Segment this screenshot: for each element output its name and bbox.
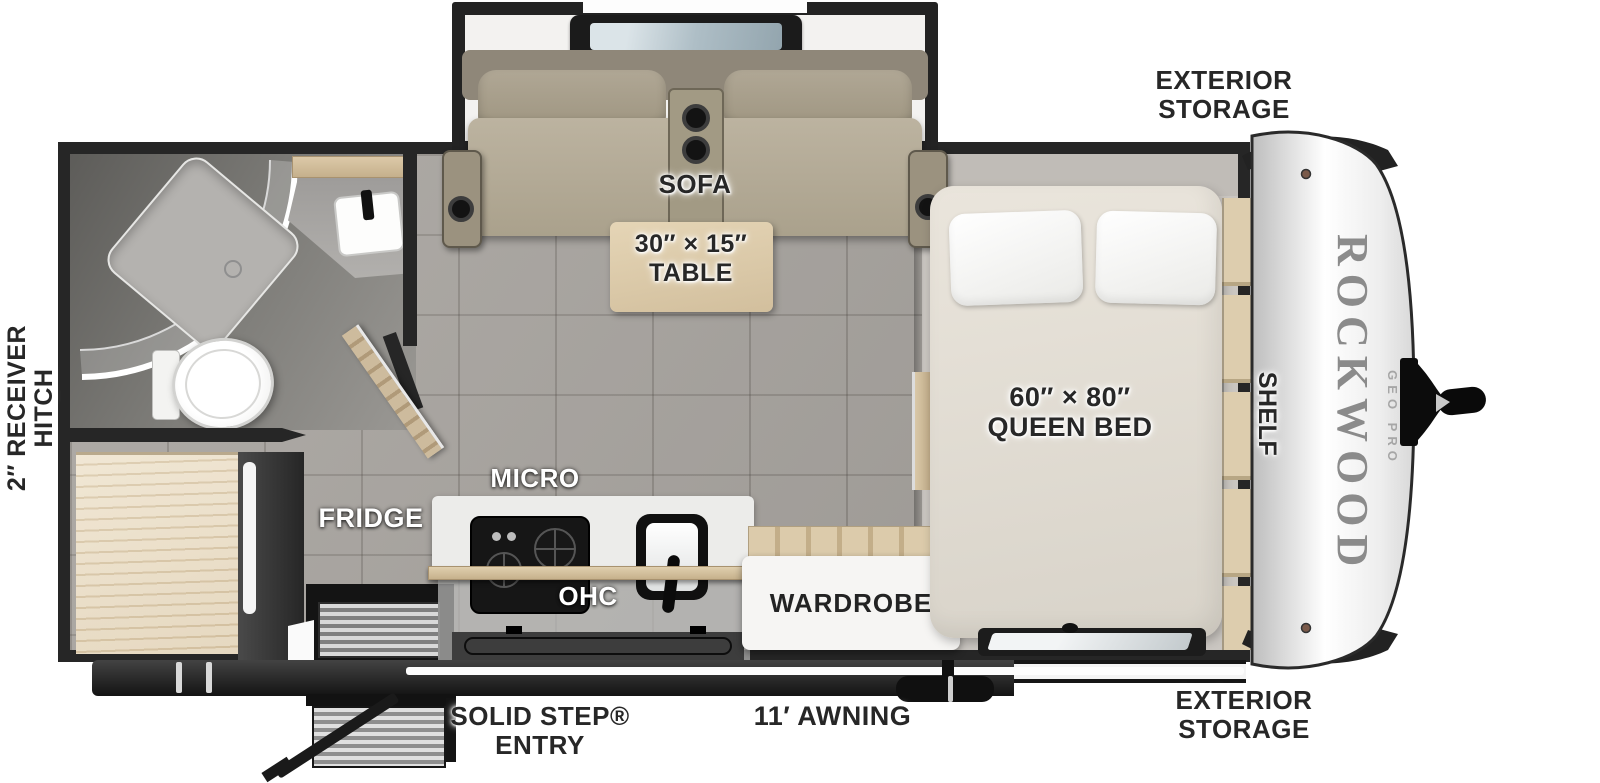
label-fridge: FRIDGE bbox=[306, 504, 436, 532]
wardrobe-label: WARDROBE bbox=[770, 588, 933, 619]
slideout-window-glass bbox=[590, 23, 782, 50]
entry-steps bbox=[318, 602, 440, 658]
wardrobe: WARDROBE bbox=[742, 556, 960, 650]
label-receiver-hitch: 2″ RECEIVER HITCH bbox=[4, 323, 56, 493]
slideout-window-gap bbox=[583, 0, 807, 13]
griddle-foot bbox=[690, 626, 706, 634]
cupholder bbox=[682, 104, 710, 132]
awning-motor bbox=[896, 676, 994, 702]
cap-rivet bbox=[1302, 170, 1311, 179]
cap-rivet bbox=[1302, 624, 1311, 633]
awning-bar bbox=[92, 660, 1014, 696]
shower-drain bbox=[224, 260, 242, 278]
bath-sink-counter bbox=[292, 156, 412, 178]
toilet-seat-ring bbox=[180, 344, 265, 424]
label-shelf: SHELF bbox=[1255, 349, 1281, 479]
pillow bbox=[948, 210, 1083, 307]
label-solid-step-entry: SOLID STEP® ENTRY bbox=[450, 702, 630, 760]
pillow bbox=[1095, 210, 1217, 305]
griddle-foot bbox=[506, 626, 522, 634]
label-sofa: SOFA bbox=[630, 170, 760, 199]
exterior-griddle-outline bbox=[464, 637, 732, 655]
floorplan-canvas: WARDROBE ROCKWOOD GEO PRO bbox=[0, 0, 1600, 783]
label-table: 30″ × 15″ TABLE bbox=[616, 230, 766, 288]
cooktop-knob bbox=[492, 532, 501, 541]
bathroom-wall-bottom bbox=[70, 428, 282, 442]
burner bbox=[534, 528, 576, 570]
overhead-cabinet-bar bbox=[428, 566, 756, 580]
cupholder bbox=[682, 136, 710, 164]
front-storage-dinette bbox=[76, 452, 238, 654]
label-ohc: OHC bbox=[528, 582, 648, 610]
awning-bracket bbox=[206, 662, 212, 693]
wardrobe-wood-slats bbox=[748, 526, 938, 560]
bathroom-wall-end bbox=[282, 428, 306, 442]
cupholder bbox=[448, 196, 474, 222]
label-micro: MICRO bbox=[470, 464, 600, 492]
label-exterior-storage-top: EXTERIOR STORAGE bbox=[1104, 66, 1344, 124]
brand-rockwood: ROCKWOOD bbox=[1326, 234, 1378, 574]
bed-area-wood-trim bbox=[912, 372, 930, 490]
awning-white-strip bbox=[406, 667, 1244, 675]
bathroom-wall bbox=[403, 154, 417, 346]
label-exterior-storage-bottom: EXTERIOR STORAGE bbox=[1124, 686, 1364, 744]
entry-mat bbox=[288, 620, 314, 660]
cooktop-knob bbox=[507, 532, 516, 541]
label-queen-bed: 60″ × 80″ QUEEN BED bbox=[940, 382, 1200, 442]
fridge-handle bbox=[243, 462, 256, 614]
awning-motor-ring bbox=[948, 676, 953, 702]
label-awning: 11′ AWNING bbox=[740, 702, 925, 731]
underbed-hatch-knob bbox=[1062, 623, 1078, 633]
awning-bracket bbox=[176, 662, 182, 693]
underbed-hatch-glass bbox=[987, 633, 1193, 650]
hitch-coupler bbox=[1398, 350, 1490, 454]
